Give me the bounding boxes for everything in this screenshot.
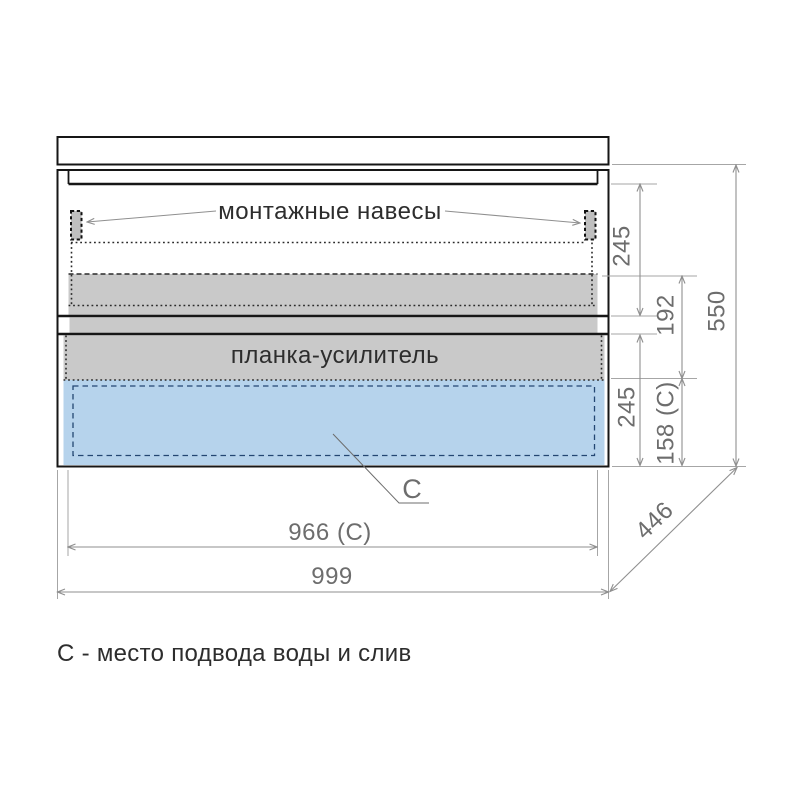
- hanger-leader-left: [87, 211, 216, 222]
- vanity-dimension-drawing: монтажные навесы планка-усилитель C 245 …: [0, 0, 800, 800]
- furniture-fills: [64, 274, 605, 465]
- drawing-svg: монтажные навесы планка-усилитель C 245 …: [0, 0, 800, 800]
- dim-text-top-section: 245: [608, 225, 635, 267]
- carcass-mid-rail-fill: [70, 318, 598, 334]
- dim-text-158: 158 (C): [652, 381, 679, 465]
- reinforcement-bar-label: планка-усилитель: [231, 342, 439, 369]
- dim-text-bottom-section: 245: [613, 386, 640, 428]
- mounting-hanger-left: [71, 211, 82, 240]
- dim-line-depth: [610, 468, 737, 592]
- zone-c-label: C: [402, 474, 422, 504]
- dim-text-192: 192: [652, 294, 679, 336]
- drawing-caption: С - место подвода воды и слив: [57, 640, 412, 667]
- dim-text-inner-width: 966 (C): [288, 519, 372, 546]
- service-zone-fill: [64, 380, 605, 465]
- dim-text-depth: 446: [630, 497, 679, 545]
- hanger-leader-right: [445, 211, 580, 223]
- countertop: [58, 137, 609, 165]
- mounting-hanger-right: [585, 211, 596, 240]
- mounting-hangers-label: монтажные навесы: [218, 198, 441, 225]
- dim-text-total-height: 550: [703, 290, 730, 332]
- dim-text-total-width: 999: [311, 563, 353, 590]
- top-drawer-back-panel-fill: [69, 274, 598, 316]
